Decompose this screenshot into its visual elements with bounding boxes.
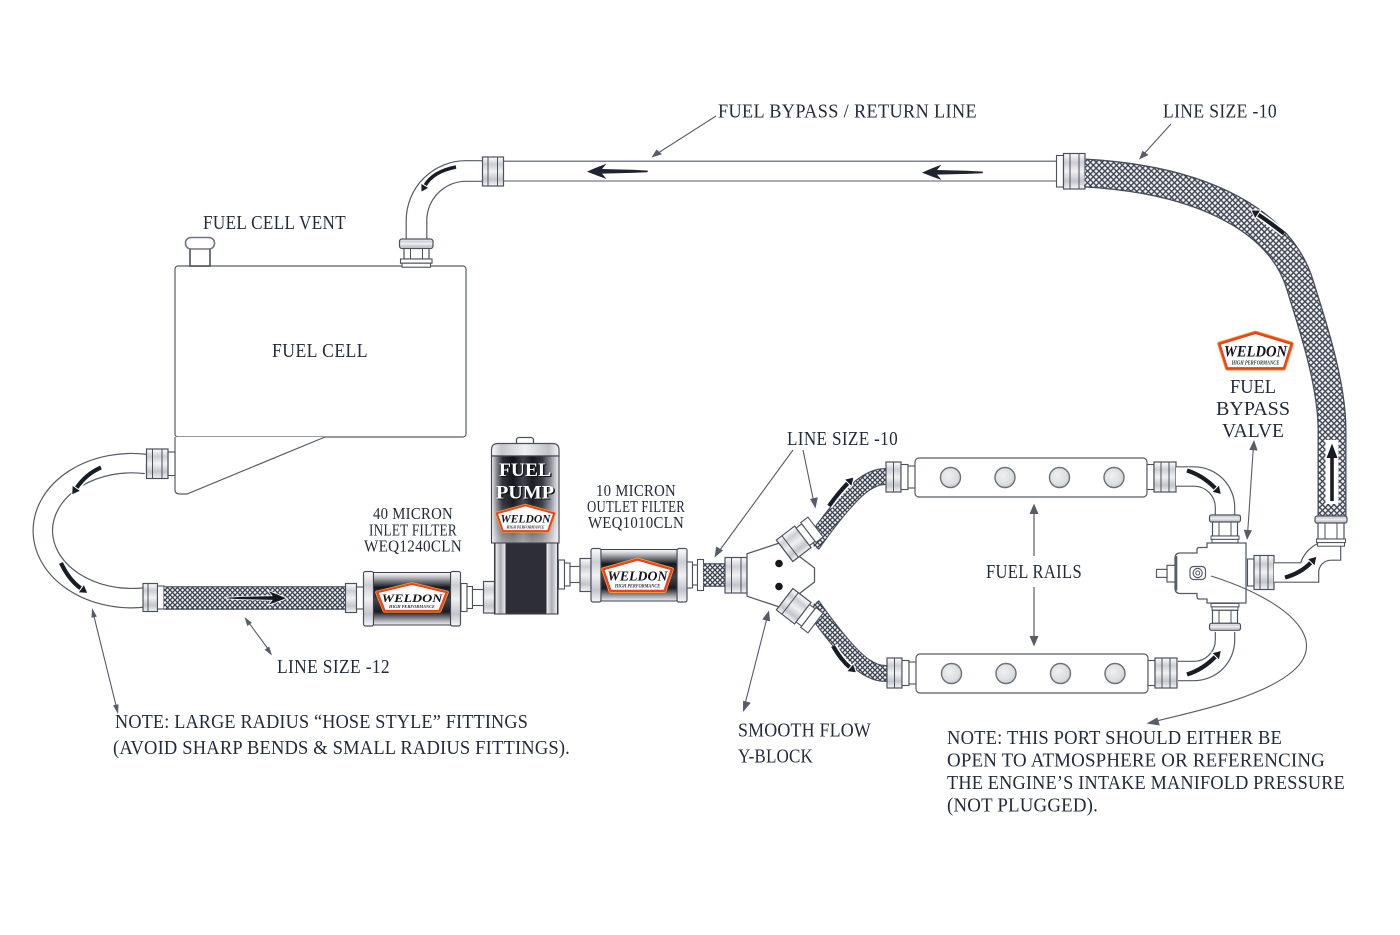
svg-text:FUEL: FUEL [1230, 377, 1276, 398]
svg-text:NOTE: LARGE RADIUS “HOSE STYLE: NOTE: LARGE RADIUS “HOSE STYLE” FITTINGS [115, 711, 528, 733]
svg-text:FUEL BYPASS / RETURN LINE: FUEL BYPASS / RETURN LINE [718, 102, 977, 123]
svg-text:WEQ1240CLN: WEQ1240CLN [364, 537, 462, 556]
svg-text:THE ENGINE’S INTAKE MANIFOLD P: THE ENGINE’S INTAKE MANIFOLD PRESSURE [947, 772, 1345, 794]
svg-text:OPEN TO ATMOSPHERE OR REFERENC: OPEN TO ATMOSPHERE OR REFERENCING [947, 750, 1325, 772]
svg-text:FUEL RAILS: FUEL RAILS [986, 562, 1082, 583]
svg-text:BYPASS: BYPASS [1216, 399, 1290, 420]
svg-text:PUMP: PUMP [496, 482, 554, 503]
svg-text:Y-BLOCK: Y-BLOCK [738, 747, 813, 768]
svg-text:(NOT PLUGGED).: (NOT PLUGGED). [947, 795, 1098, 817]
svg-text:FUEL CELL VENT: FUEL CELL VENT [203, 213, 346, 234]
svg-text:FUEL CELL: FUEL CELL [272, 341, 368, 362]
svg-text:SMOOTH FLOW: SMOOTH FLOW [738, 721, 871, 742]
svg-text:(AVOID SHARP BENDS & SMALL RAD: (AVOID SHARP BENDS & SMALL RADIUS FITTIN… [113, 737, 570, 759]
svg-text:FUEL: FUEL [499, 460, 551, 481]
svg-text:LINE SIZE -12: LINE SIZE -12 [277, 657, 390, 678]
svg-text:VALVE: VALVE [1222, 421, 1284, 442]
svg-text:LINE SIZE -10: LINE SIZE -10 [1163, 102, 1277, 123]
svg-text:LINE SIZE -10: LINE SIZE -10 [787, 429, 898, 450]
svg-text:WEQ1010CLN: WEQ1010CLN [588, 513, 684, 532]
svg-text:NOTE: THIS PORT SHOULD EITHER: NOTE: THIS PORT SHOULD EITHER BE [947, 727, 1282, 749]
